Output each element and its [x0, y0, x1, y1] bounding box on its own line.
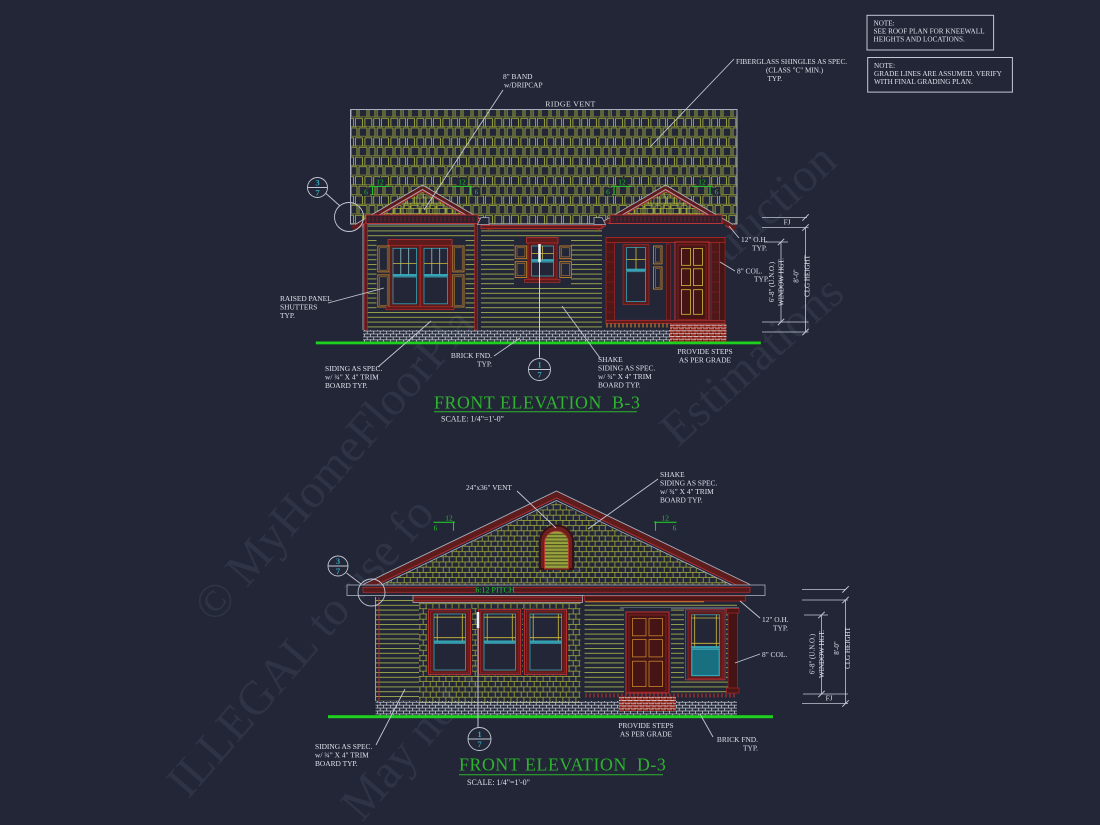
- svg-text:(CLASS "C" MIN.): (CLASS "C" MIN.): [766, 67, 824, 75]
- svg-text:12: 12: [445, 513, 453, 522]
- svg-text:SEE ROOF PLAN FOR KNEEWALL: SEE ROOF PLAN FOR KNEEWALL: [874, 28, 985, 36]
- svg-text:TYP.: TYP.: [280, 311, 295, 320]
- svg-text:7: 7: [336, 566, 341, 576]
- svg-text:HEIGHTS AND LOCATIONS.: HEIGHTS AND LOCATIONS.: [874, 36, 965, 44]
- svg-text:TYP.: TYP.: [743, 744, 758, 753]
- svg-text:TYP.: TYP.: [477, 360, 492, 369]
- svg-text:TYP.: TYP.: [768, 75, 783, 83]
- svg-text:TYP.: TYP.: [773, 624, 788, 633]
- svg-text:WINDOW HGT.: WINDOW HGT.: [778, 258, 786, 306]
- svg-text:6: 6: [434, 524, 438, 533]
- svg-text:SCALE: 1/4"=1'-0": SCALE: 1/4"=1'-0": [467, 778, 530, 787]
- svg-text:GRADE LINES ARE ASSUMED. VERIF: GRADE LINES ARE ASSUMED. VERIFY: [874, 70, 1003, 78]
- svg-text:3: 3: [336, 556, 340, 566]
- svg-text:6:12 PITCH: 6:12 PITCH: [475, 586, 515, 595]
- svg-text:TYP.: TYP.: [752, 244, 767, 253]
- svg-text:AS PER GRADE: AS PER GRADE: [679, 356, 732, 365]
- svg-text:CLG HEIGHT: CLG HEIGHT: [804, 254, 812, 297]
- svg-text:TYP.: TYP.: [754, 275, 769, 284]
- svg-text:FRONT ELEVATION D-3: FRONT ELEVATION D-3: [459, 755, 666, 775]
- svg-text:BOARD TYP.: BOARD TYP.: [325, 381, 368, 390]
- svg-text:NOTE:: NOTE:: [874, 20, 895, 28]
- svg-text:6: 6: [715, 188, 719, 197]
- svg-text:FJ: FJ: [784, 219, 791, 227]
- svg-text:6'-8" (U.N.O.): 6'-8" (U.N.O.): [768, 261, 776, 302]
- svg-text:RIDGE VENT: RIDGE VENT: [545, 100, 595, 109]
- svg-text:24"x36" VENT: 24"x36" VENT: [466, 483, 512, 492]
- svg-text:FIBERGLASS SHINGLES AS SPEC.: FIBERGLASS SHINGLES AS SPEC.: [736, 58, 847, 66]
- svg-text:WITH FINAL GRADING PLAN.: WITH FINAL GRADING PLAN.: [874, 78, 973, 86]
- svg-text:w/DRIPCAP: w/DRIPCAP: [504, 81, 543, 90]
- svg-text:8'-0": 8'-0": [793, 269, 801, 283]
- svg-text:WINDOW HGT.: WINDOW HGT.: [818, 630, 826, 678]
- svg-text:12: 12: [376, 178, 384, 187]
- svg-text:SCALE: 1/4"=1'-0": SCALE: 1/4"=1'-0": [441, 415, 504, 424]
- svg-text:3: 3: [315, 178, 319, 188]
- svg-text:12: 12: [662, 513, 670, 522]
- svg-text:12: 12: [618, 178, 626, 187]
- svg-text:1: 1: [537, 360, 541, 370]
- svg-text:BOARD TYP.: BOARD TYP.: [660, 496, 703, 505]
- svg-text:6: 6: [673, 524, 677, 533]
- svg-text:8" COL.: 8" COL.: [762, 650, 787, 659]
- svg-text:6: 6: [475, 188, 479, 197]
- svg-text:12: 12: [698, 178, 706, 187]
- svg-text:NOTE:: NOTE:: [874, 62, 895, 70]
- svg-text:6'-8" (U.N.O.): 6'-8" (U.N.O.): [809, 633, 817, 674]
- svg-text:8'-0": 8'-0": [833, 641, 841, 655]
- svg-text:FRONT ELEVATION B-3: FRONT ELEVATION B-3: [434, 393, 640, 413]
- svg-text:7: 7: [477, 739, 482, 749]
- svg-text:7: 7: [537, 370, 542, 380]
- svg-text:BOARD TYP.: BOARD TYP.: [315, 759, 358, 768]
- svg-text:AS PER GRADE: AS PER GRADE: [620, 730, 673, 739]
- svg-text:CLG HEIGHT: CLG HEIGHT: [844, 626, 852, 669]
- svg-text:FJ: FJ: [826, 695, 833, 703]
- svg-text:12: 12: [458, 178, 466, 187]
- svg-text:6: 6: [364, 188, 368, 197]
- svg-text:6: 6: [606, 188, 610, 197]
- svg-text:7: 7: [315, 188, 320, 198]
- svg-text:BOARD TYP.: BOARD TYP.: [598, 381, 641, 390]
- svg-text:1: 1: [477, 729, 481, 739]
